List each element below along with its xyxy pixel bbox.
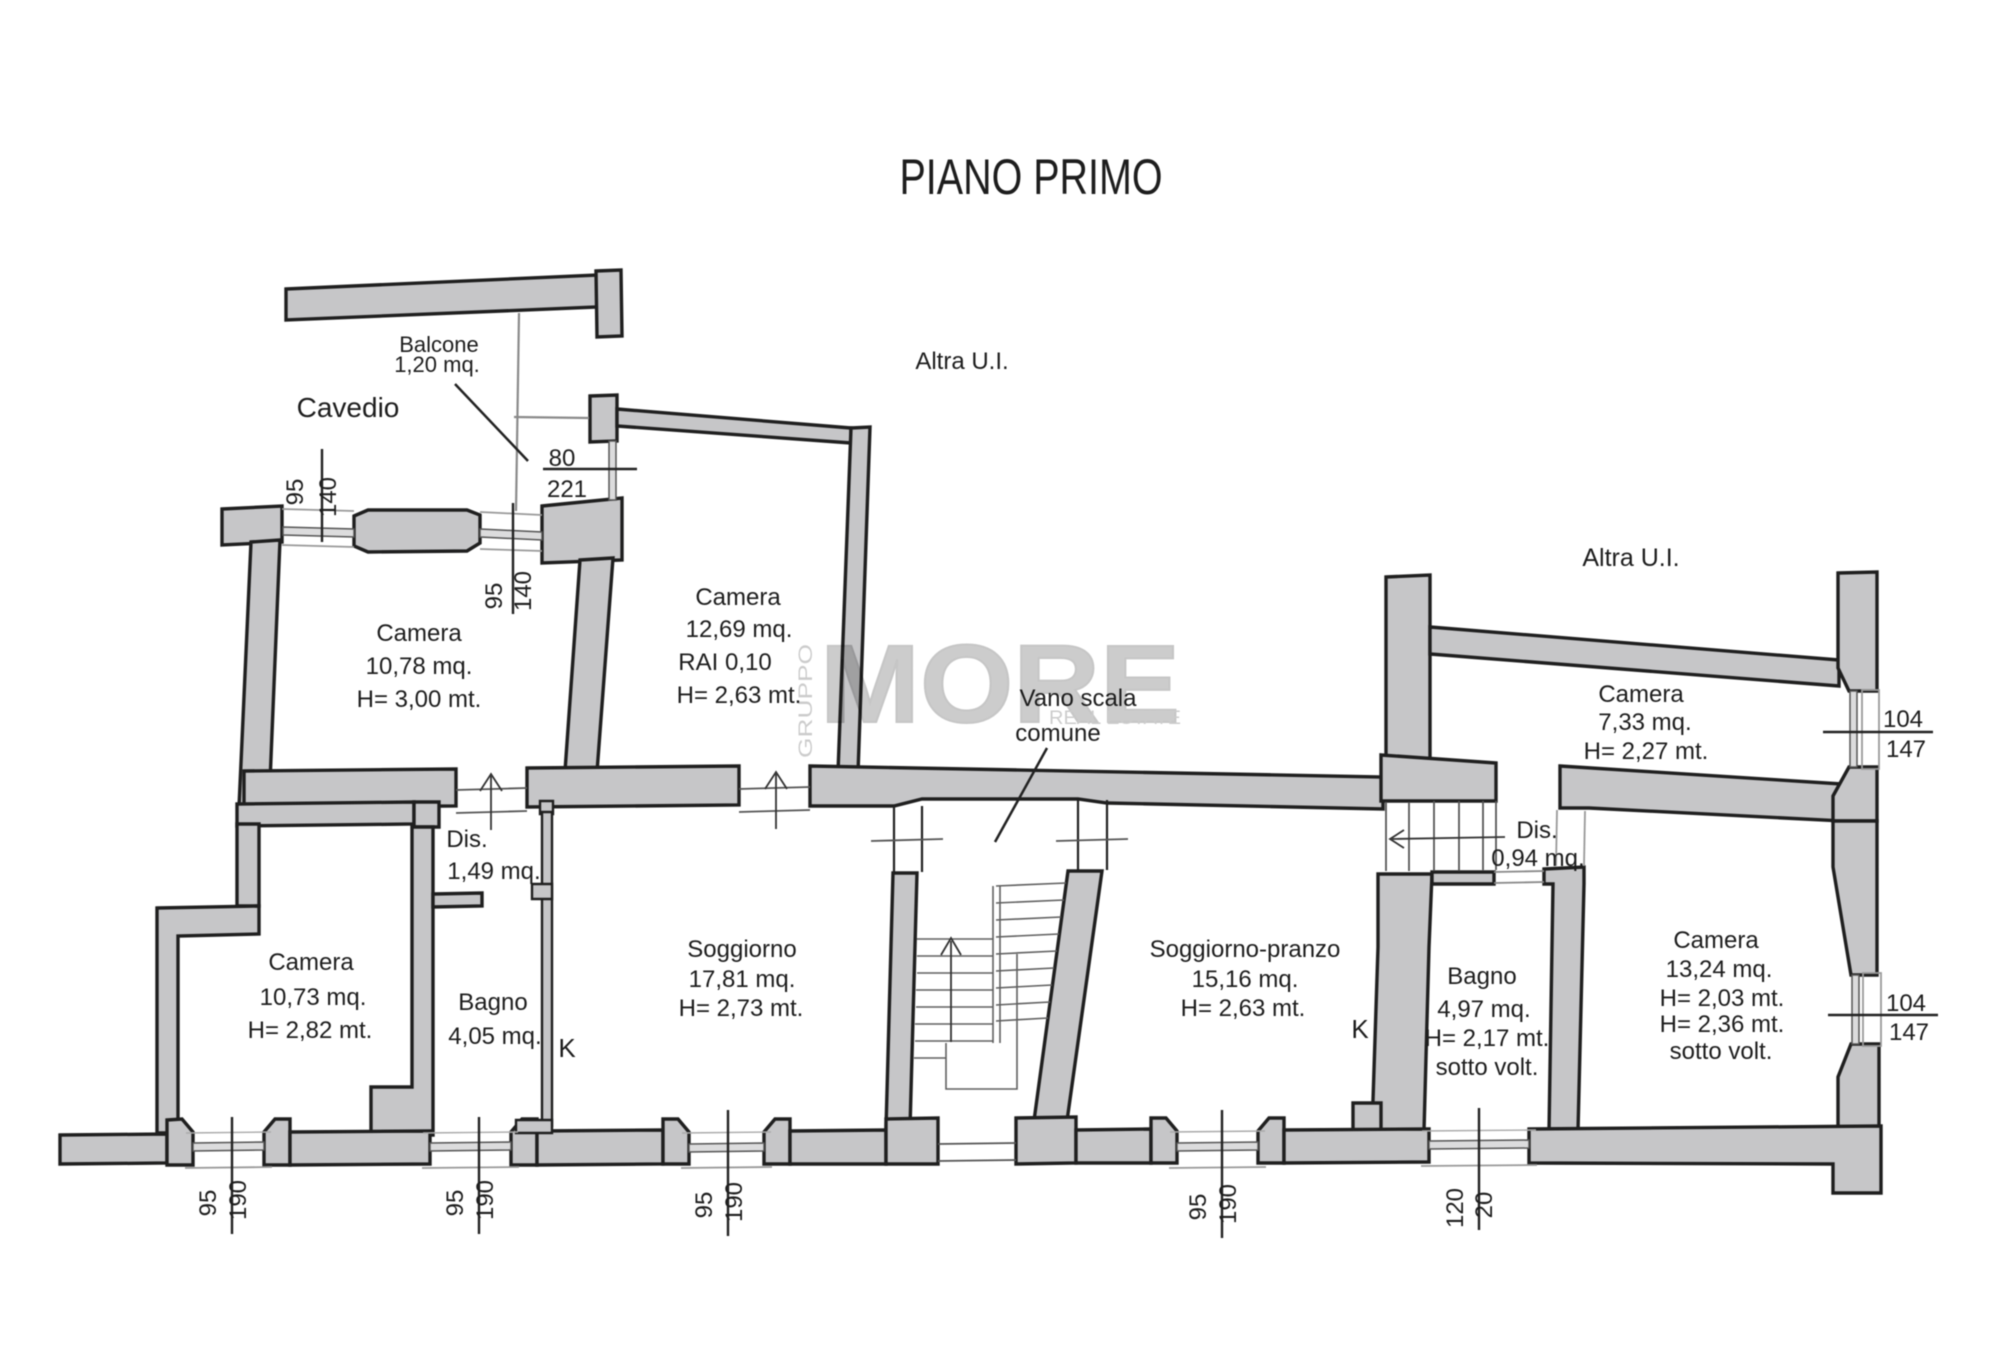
svg-text:190: 190 bbox=[472, 1180, 499, 1220]
svg-text:1,20 mq.: 1,20 mq. bbox=[394, 352, 480, 377]
svg-text:95: 95 bbox=[442, 1190, 469, 1217]
svg-text:12,69 mq.: 12,69 mq. bbox=[686, 616, 793, 643]
svg-text:190: 190 bbox=[1215, 1184, 1242, 1224]
svg-text:sotto volt.: sotto volt. bbox=[1670, 1038, 1773, 1065]
svg-text:147: 147 bbox=[1886, 736, 1926, 763]
svg-text:K: K bbox=[558, 1033, 576, 1063]
svg-text:K: K bbox=[1351, 1014, 1369, 1044]
svg-text:Soggiorno: Soggiorno bbox=[687, 936, 796, 963]
svg-text:1,49 mq.: 1,49 mq. bbox=[447, 858, 540, 885]
svg-text:80: 80 bbox=[549, 445, 576, 472]
svg-text:RAI 0,10: RAI 0,10 bbox=[678, 649, 771, 676]
svg-text:190: 190 bbox=[225, 1180, 252, 1220]
svg-text:Bagno: Bagno bbox=[458, 989, 527, 1016]
svg-text:4,05 mq.: 4,05 mq. bbox=[448, 1023, 541, 1050]
svg-text:Dis.: Dis. bbox=[1516, 817, 1557, 844]
svg-text:147: 147 bbox=[1889, 1019, 1929, 1046]
svg-text:GRUPPO: GRUPPO bbox=[796, 644, 817, 758]
svg-text:Camera: Camera bbox=[695, 584, 781, 611]
svg-text:Camera: Camera bbox=[268, 949, 354, 976]
svg-text:20: 20 bbox=[1471, 1192, 1498, 1219]
svg-text:REAL ESTATE: REAL ESTATE bbox=[1049, 708, 1181, 729]
svg-text:H= 2,63 mt.: H= 2,63 mt. bbox=[677, 682, 802, 709]
svg-text:4,97 mq.: 4,97 mq. bbox=[1437, 996, 1530, 1023]
svg-text:Camera: Camera bbox=[1598, 681, 1684, 708]
svg-text:10,78 mq.: 10,78 mq. bbox=[366, 653, 473, 680]
svg-text:H= 2,82 mt.: H= 2,82 mt. bbox=[248, 1017, 373, 1044]
svg-text:95: 95 bbox=[691, 1192, 718, 1219]
svg-text:95: 95 bbox=[195, 1190, 222, 1217]
svg-text:Camera: Camera bbox=[1673, 927, 1759, 954]
svg-text:sotto volt.: sotto volt. bbox=[1436, 1054, 1539, 1081]
svg-text:15,16 mq.: 15,16 mq. bbox=[1192, 966, 1299, 993]
svg-text:H= 3,00 mt.: H= 3,00 mt. bbox=[357, 686, 482, 713]
svg-text:95: 95 bbox=[1185, 1194, 1212, 1221]
svg-text:140: 140 bbox=[510, 571, 537, 611]
svg-text:104: 104 bbox=[1883, 706, 1923, 733]
svg-text:Altra U.I.: Altra U.I. bbox=[915, 348, 1008, 375]
svg-text:95: 95 bbox=[282, 479, 309, 506]
svg-text:PIANO PRIMO: PIANO PRIMO bbox=[900, 149, 1163, 205]
svg-text:221: 221 bbox=[547, 476, 587, 503]
svg-text:Bagno: Bagno bbox=[1447, 963, 1516, 990]
svg-text:120: 120 bbox=[1442, 1188, 1469, 1228]
svg-text:140: 140 bbox=[315, 477, 342, 517]
svg-text:190: 190 bbox=[721, 1182, 748, 1222]
svg-text:H= 2,73 mt.: H= 2,73 mt. bbox=[679, 995, 804, 1022]
svg-text:10,73 mq.: 10,73 mq. bbox=[260, 984, 367, 1011]
svg-text:Dis.: Dis. bbox=[446, 826, 487, 853]
svg-text:Altra U.I.: Altra U.I. bbox=[1582, 544, 1679, 572]
svg-text:Soggiorno-pranzo: Soggiorno-pranzo bbox=[1150, 936, 1341, 963]
svg-text:7,33 mq.: 7,33 mq. bbox=[1598, 709, 1691, 736]
svg-text:H= 2,03 mt.: H= 2,03 mt. bbox=[1660, 985, 1785, 1012]
svg-text:H= 2,63 mt.: H= 2,63 mt. bbox=[1181, 995, 1306, 1022]
svg-text:95: 95 bbox=[481, 583, 508, 610]
svg-text:H= 2,36 mt.: H= 2,36 mt. bbox=[1660, 1011, 1785, 1038]
svg-text:Cavedio: Cavedio bbox=[297, 392, 400, 423]
svg-text:H= 2,17 mt.: H= 2,17 mt. bbox=[1425, 1025, 1550, 1052]
svg-text:H= 2,27 mt.: H= 2,27 mt. bbox=[1584, 738, 1709, 765]
svg-text:17,81 mq.: 17,81 mq. bbox=[689, 966, 796, 993]
svg-text:Camera: Camera bbox=[376, 620, 462, 647]
svg-text:104: 104 bbox=[1886, 990, 1926, 1017]
svg-text:0,94 mq.: 0,94 mq. bbox=[1491, 845, 1584, 872]
svg-text:13,24 mq.: 13,24 mq. bbox=[1666, 956, 1773, 983]
